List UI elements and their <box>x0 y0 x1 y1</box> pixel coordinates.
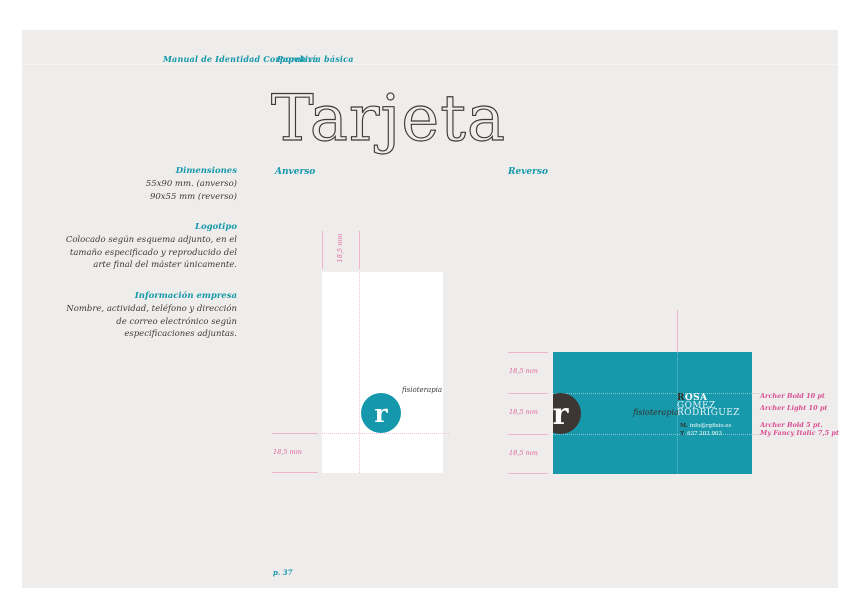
spec-line: especificaciones adjuntas. <box>50 328 237 341</box>
anverso-label: Anverso <box>275 167 315 177</box>
measure-guide-line <box>272 433 318 434</box>
name-line-3: RODRÍGUEZ <box>677 410 740 418</box>
layout-guide-horizontal <box>553 393 752 394</box>
spec-line: Colocado según esquema adjunto, en el <box>50 234 237 247</box>
page-title: Tarjeta <box>271 84 506 154</box>
spec-heading-logotipo: Logotipo <box>50 221 237 234</box>
type-annotations-contact: Archer Bold 5 pt. My Fancy Italic 7,5 pt <box>760 421 839 437</box>
spec-line: de correo electrónico según <box>50 316 237 329</box>
measure-label: 18,5 mm <box>509 449 538 457</box>
brand-logo-letter: r <box>374 399 387 428</box>
spec-heading-informacion: Información empresa <box>50 290 237 303</box>
measure-guide-line <box>677 310 678 352</box>
measure-guide-line <box>508 393 548 394</box>
measure-guide-line <box>508 434 548 435</box>
annotation-line: Archer Bold 10 pt <box>760 390 827 402</box>
header-divider <box>22 64 838 65</box>
type-annotations-name: Archer Bold 10 pt Archer Light 10 pt <box>760 390 827 414</box>
measure-guide-line <box>359 231 360 269</box>
reverso-label: Reverso <box>508 167 548 177</box>
spec-line: 90x55 mm (reverso) <box>50 191 237 204</box>
cardholder-name: ROSA GÓMEZ RODRÍGUEZ <box>677 395 740 418</box>
brand-logo-circle: r <box>361 393 401 433</box>
logo-guide-horizontal <box>322 433 449 434</box>
manual-page: Manual de Identidad Corporativa Papelerí… <box>0 0 860 613</box>
measure-label: 18,5 mm <box>509 408 538 416</box>
measure-guide-line <box>508 352 548 353</box>
business-card-back: r ROSA GÓMEZ RODRÍGUEZ fisioterapia M. i… <box>553 352 752 474</box>
brand-logo-circle-dark: r <box>553 393 581 434</box>
page-number: p. 37 <box>273 568 293 577</box>
measure-label-top: 18,5 mm <box>336 228 344 268</box>
annotation-line: My Fancy Italic 7,5 pt <box>760 429 839 437</box>
measure-guide-line <box>508 473 548 474</box>
brand-logo-letter: r <box>553 397 568 432</box>
spec-line: arte final del máster únicamente. <box>50 259 237 272</box>
spec-line: Nombre, actividad, teléfono y dirección <box>50 303 237 316</box>
logo-guide-vertical <box>359 272 360 473</box>
measure-guide-line <box>272 472 318 473</box>
contact-info: M. info@rgfisio.es T. 637 203 903 <box>680 422 731 438</box>
annotation-line: Archer Light 10 pt <box>760 402 827 414</box>
spec-heading-dimensiones: Dimensiones <box>50 165 237 178</box>
sidebar-specs: Dimensiones 55x90 mm. (anverso) 90x55 mm… <box>50 165 237 341</box>
brand-script-overlay: fisioterapia <box>633 408 679 417</box>
brand-logo-wordmark: fisioterapia <box>402 386 442 394</box>
measure-guide-line <box>322 231 323 269</box>
spec-line: tamaño especificado y reproducido del <box>50 247 237 260</box>
section-title: Papelería básica <box>277 54 354 64</box>
annotation-line: Archer Bold 5 pt. <box>760 421 839 429</box>
spec-line: 55x90 mm. (anverso) <box>50 178 237 191</box>
measure-label: 18,5 mm <box>509 367 538 375</box>
contact-email: M. info@rgfisio.es <box>680 422 731 430</box>
business-card-front <box>322 272 443 473</box>
contact-phone: T. 637 203 903 <box>680 430 731 438</box>
measure-label-left: 18,5 mm <box>273 448 302 456</box>
